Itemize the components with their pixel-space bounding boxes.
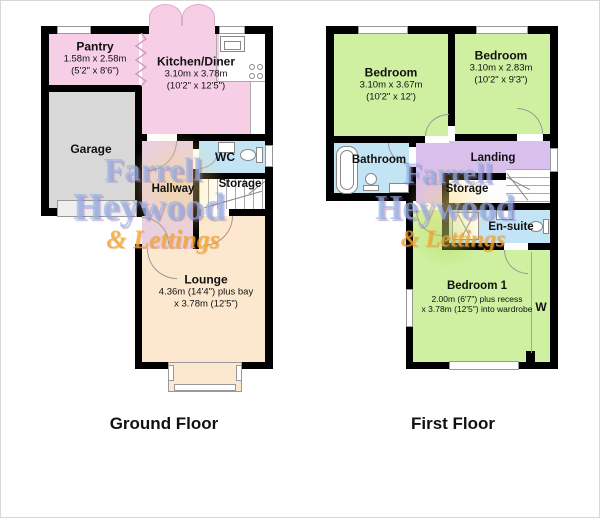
window — [358, 26, 408, 34]
zigzag-divider — [135, 33, 147, 87]
watermark-text: & Lettings — [106, 225, 219, 255]
room-label-pantry: Pantry 1.58m x 2.58m (5'2" x 8'6") — [64, 39, 127, 76]
first-floor-title: First Floor — [411, 414, 495, 434]
window — [550, 148, 558, 172]
window — [168, 365, 174, 381]
ground-floor-title: Ground Floor — [110, 414, 219, 434]
window — [57, 26, 91, 34]
patio-door-opening — [149, 26, 215, 34]
wall — [550, 26, 558, 369]
toilet-cistern-icon — [543, 219, 549, 234]
window — [174, 384, 236, 391]
room-label-ensuite: En-suite — [488, 221, 533, 235]
wall — [265, 26, 273, 369]
window — [449, 361, 519, 370]
watermark-text: Heywood — [73, 185, 225, 229]
wall — [448, 26, 455, 126]
wall — [135, 362, 168, 369]
room-label-garage: Garage — [70, 142, 111, 156]
window — [406, 289, 413, 327]
window — [476, 26, 528, 34]
toilet-cistern-icon — [256, 147, 263, 163]
wall — [406, 362, 449, 369]
room-label-bedroom1: Bedroom 1 2.00m (6'7") plus recess x 3.7… — [422, 280, 533, 314]
room-label-landing: Landing — [471, 152, 516, 166]
window — [265, 145, 273, 167]
room-label-hallway: Hallway — [152, 183, 195, 197]
toilet-icon — [365, 173, 377, 185]
room-label-lounge: Lounge 4.36m (14'4") plus bay x 3.78m (1… — [159, 272, 253, 309]
wall — [41, 26, 49, 216]
wall — [49, 85, 142, 92]
window — [236, 365, 242, 381]
door-opening — [517, 134, 543, 141]
hob-icon — [248, 62, 265, 84]
kitchen-sink-icon — [224, 41, 241, 50]
room-label-storage-first: Storage — [446, 183, 489, 197]
floorplan-image: Farrell Heywood & Lettings Pantry 1.58m … — [0, 0, 600, 518]
room-label-bedroom-right: Bedroom 3.10m x 2.83m (10'2" x 9'3") — [470, 48, 533, 85]
window — [219, 26, 245, 34]
wall — [242, 362, 273, 369]
room-label-kitchen: Kitchen/Diner 3.10m x 3.78m (10'2" x 12'… — [157, 54, 235, 91]
room-label-bedroom-left: Bedroom 3.10m x 3.67m (10'2" x 12') — [360, 65, 423, 102]
counter-edge — [250, 82, 265, 134]
door-opening — [504, 243, 528, 250]
room-label-wc: WC — [215, 150, 235, 164]
room-label-storage: Storage — [219, 178, 262, 192]
toilet-icon — [240, 149, 256, 161]
room-label-bathroom: Bathroom — [352, 154, 406, 168]
room-label-wardrobe: W — [535, 300, 546, 314]
wall — [326, 26, 334, 201]
